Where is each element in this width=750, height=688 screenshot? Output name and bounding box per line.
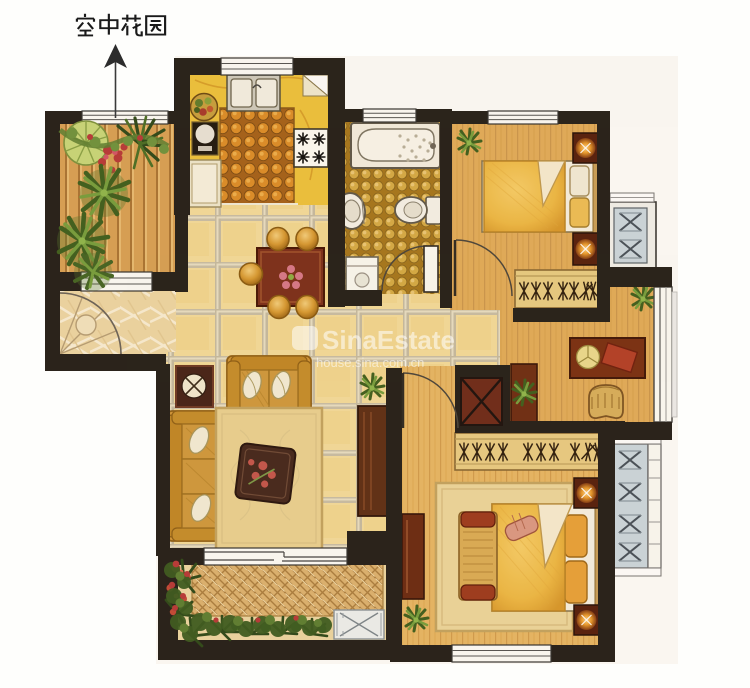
svg-text:house.sina.com.cn: house.sina.com.cn bbox=[316, 355, 424, 370]
svg-text:SinaEstate: SinaEstate bbox=[322, 325, 455, 355]
